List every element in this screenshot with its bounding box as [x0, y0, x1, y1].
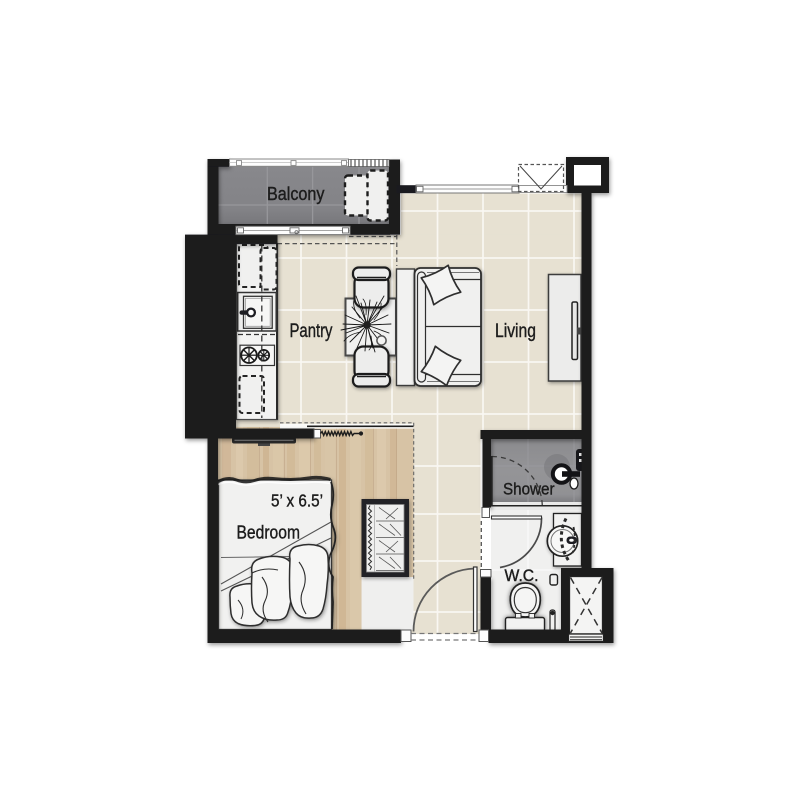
svg-text:Pantry: Pantry: [290, 321, 333, 342]
svg-text:5’ x 6.5’: 5’ x 6.5’: [271, 491, 323, 511]
svg-text:Living: Living: [495, 321, 536, 342]
svg-text:Balcony: Balcony: [267, 184, 325, 204]
svg-text:Bedroom: Bedroom: [237, 523, 301, 543]
svg-text:Shower: Shower: [503, 480, 555, 499]
svg-text:W.C.: W.C.: [505, 567, 539, 585]
